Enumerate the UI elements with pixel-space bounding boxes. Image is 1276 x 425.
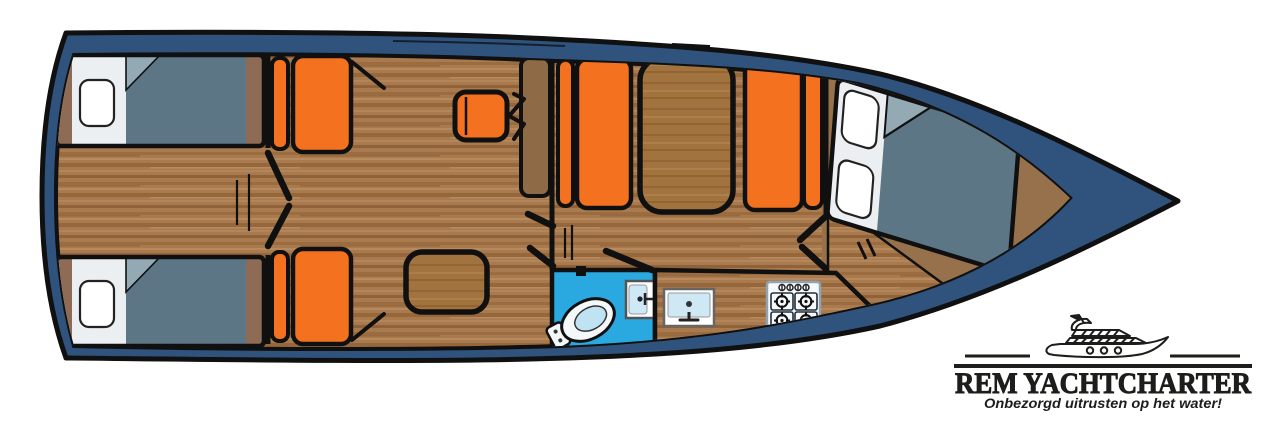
aft-cabin-starboard-bed [56,257,264,346]
logo: REM YACHTCHARTER Onbezorgd uitrusten op … [954,315,1252,411]
aft-cabin-port-bed [56,55,264,146]
pillow [80,281,114,327]
deck-hatch-mark [672,45,710,47]
salon-bench-port [272,56,351,152]
bathroom-sink [626,281,654,318]
galley-sink [664,289,714,326]
logo-tagline: Onbezorgd uitrusten op het water! [984,396,1223,411]
dinette-table [640,58,733,212]
pillow [80,80,114,126]
faucet-icon [686,301,692,307]
dinette-bench-left [558,59,631,208]
bow-pillow [841,88,879,150]
floorplan-canvas: REM YACHTCHARTER Onbezorgd uitrusten op … [0,0,1276,425]
bow-pillow [836,158,874,220]
faucet-icon [637,296,642,301]
yacht-logo-icon [1046,315,1168,357]
footboard [246,257,264,346]
dinette-bench-right [745,62,822,210]
yacht-floorplan-page: REM YACHTCHARTER Onbezorgd uitrusten op … [0,0,1276,425]
helm-seat [455,92,507,140]
salon-table [406,252,487,312]
side-cabinet [521,58,550,196]
doorway-notch [576,266,586,276]
salon-bench-starboard [272,249,351,344]
footboard [246,55,264,146]
